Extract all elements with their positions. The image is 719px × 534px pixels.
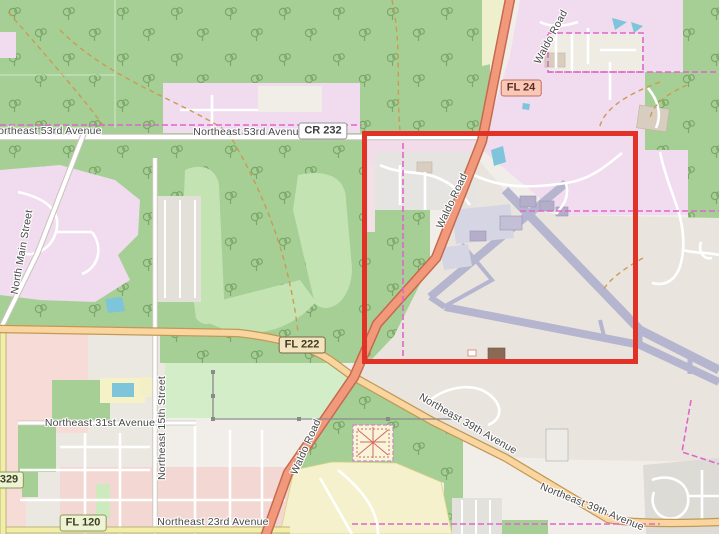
- map-canvas[interactable]: Northeast 53rd AvenueNortheast 53rd Aven…: [0, 0, 719, 534]
- historic-compound: [353, 425, 393, 461]
- highlight-rectangle: [362, 131, 638, 364]
- golf-parking: [157, 196, 201, 302]
